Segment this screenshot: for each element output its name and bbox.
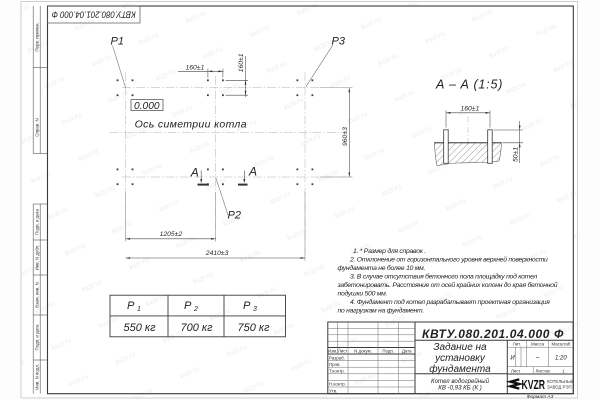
svg-text:Т.контр.: Т.контр. — [329, 369, 345, 374]
svg-text:Изм.: Изм. — [328, 349, 337, 354]
svg-text:Дата: Дата — [402, 349, 412, 354]
svg-text:KVZR: KVZR — [522, 377, 546, 392]
svg-text:КВТУ.080.201.04.000 Ф: КВТУ.080.201.04.000 Ф — [422, 327, 564, 341]
svg-text:1: 1 — [562, 368, 565, 373]
svg-text:N докум.: N докум. — [354, 349, 372, 354]
svg-text:Разраб.: Разраб. — [329, 355, 345, 360]
svg-text:–: – — [535, 355, 540, 361]
svg-text:Лист: Лист — [338, 349, 348, 354]
svg-text:фундамента: фундамента — [429, 363, 491, 375]
svg-text:Масса: Масса — [531, 342, 545, 347]
svg-text:Листов: Листов — [535, 368, 550, 373]
svg-text:Масштаб: Масштаб — [552, 342, 571, 347]
svg-text:ЗАВОД РЭП: ЗАВОД РЭП — [547, 384, 572, 389]
svg-text:установку: установку — [434, 353, 486, 364]
svg-text:Утв.: Утв. — [329, 388, 337, 393]
svg-text:И: И — [510, 356, 515, 362]
svg-text:Н.контр.: Н.контр. — [329, 382, 346, 387]
svg-text:Формат А3: Формат А3 — [527, 394, 554, 400]
svg-text:Задание на: Задание на — [433, 342, 487, 353]
svg-text:Лист: Лист — [511, 368, 521, 373]
svg-text:КВ -0,93 КБ (К ): КВ -0,93 КБ (К ) — [438, 385, 482, 392]
svg-text:Подп.: Подп. — [382, 349, 394, 354]
svg-text:1:20: 1:20 — [555, 356, 567, 362]
svg-text:Лит.: Лит. — [513, 342, 521, 347]
svg-text:КОТЕЛЬНЫЙ: КОТЕЛЬНЫЙ — [547, 379, 574, 384]
svg-text:Пров.: Пров. — [329, 362, 341, 367]
